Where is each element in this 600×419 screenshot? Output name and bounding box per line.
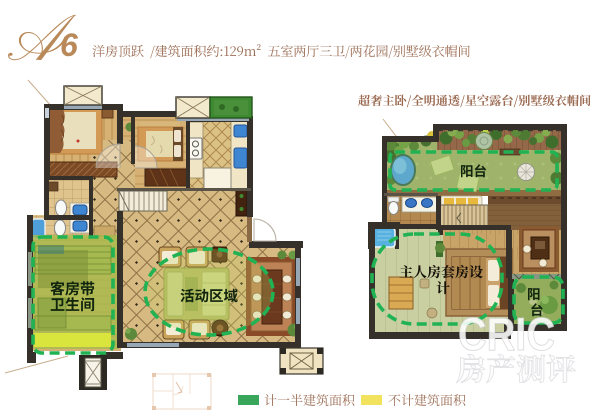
svg-text:6: 6 (60, 27, 78, 63)
svg-text:CRIC: CRIC (458, 308, 555, 360)
